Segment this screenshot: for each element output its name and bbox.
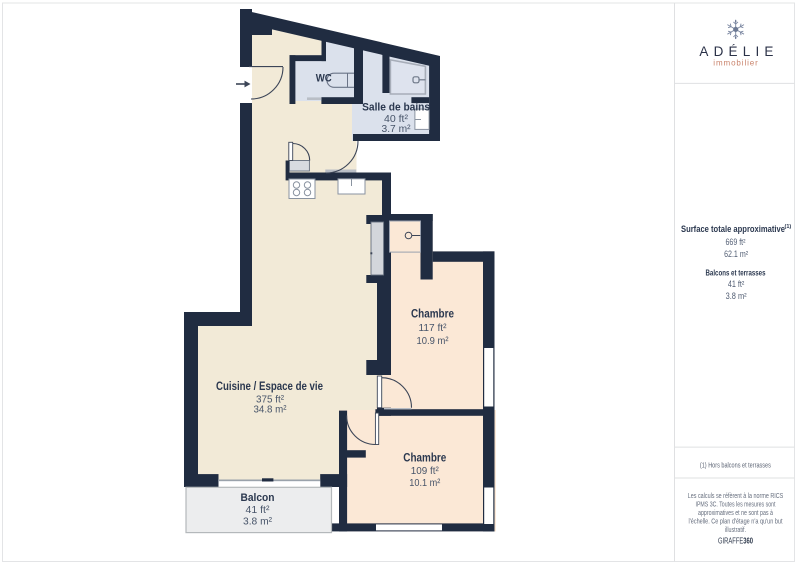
svg-text:Chambre: Chambre	[403, 452, 446, 464]
svg-text:Balcons et terrasses: Balcons et terrasses	[706, 267, 766, 277]
svg-text:WC: WC	[316, 73, 332, 85]
svg-text:117 ft²: 117 ft²	[419, 322, 447, 334]
svg-text:Surface totale approximative: Surface totale approximative	[681, 224, 785, 234]
svg-text:Cuisine / Espace de vie: Cuisine / Espace de vie	[216, 381, 323, 393]
svg-text:Salle de bains: Salle de bains	[362, 102, 430, 114]
svg-text:3.8 m²: 3.8 m²	[243, 516, 272, 528]
svg-text:41 ft²: 41 ft²	[246, 504, 270, 516]
svg-text:3.7 m²: 3.7 m²	[382, 124, 412, 135]
svg-text:10.9 m²: 10.9 m²	[417, 335, 449, 347]
svg-text:Balcon: Balcon	[241, 492, 275, 504]
svg-text:669 ft²: 669 ft²	[726, 237, 746, 247]
svg-text:109 ft²: 109 ft²	[411, 465, 439, 477]
svg-text:GIRAFFE360: GIRAFFE360	[718, 537, 753, 546]
svg-text:immobilier: immobilier	[713, 59, 758, 68]
svg-text:(1): (1)	[785, 224, 792, 230]
svg-text:(1) Hors balcons et terrasses: (1) Hors balcons et terrasses	[700, 460, 771, 469]
svg-text:Chambre: Chambre	[411, 309, 454, 321]
svg-text:41 ft²: 41 ft²	[728, 279, 745, 289]
svg-text:62.1 m²: 62.1 m²	[724, 249, 748, 259]
svg-text:illustratif.: illustratif.	[725, 525, 746, 534]
svg-text:3.8 m²: 3.8 m²	[726, 291, 747, 301]
svg-text:ADÉLIE: ADÉLIE	[699, 44, 778, 59]
svg-text:10.1 m²: 10.1 m²	[409, 477, 440, 489]
svg-text:34.8 m²: 34.8 m²	[254, 404, 287, 416]
